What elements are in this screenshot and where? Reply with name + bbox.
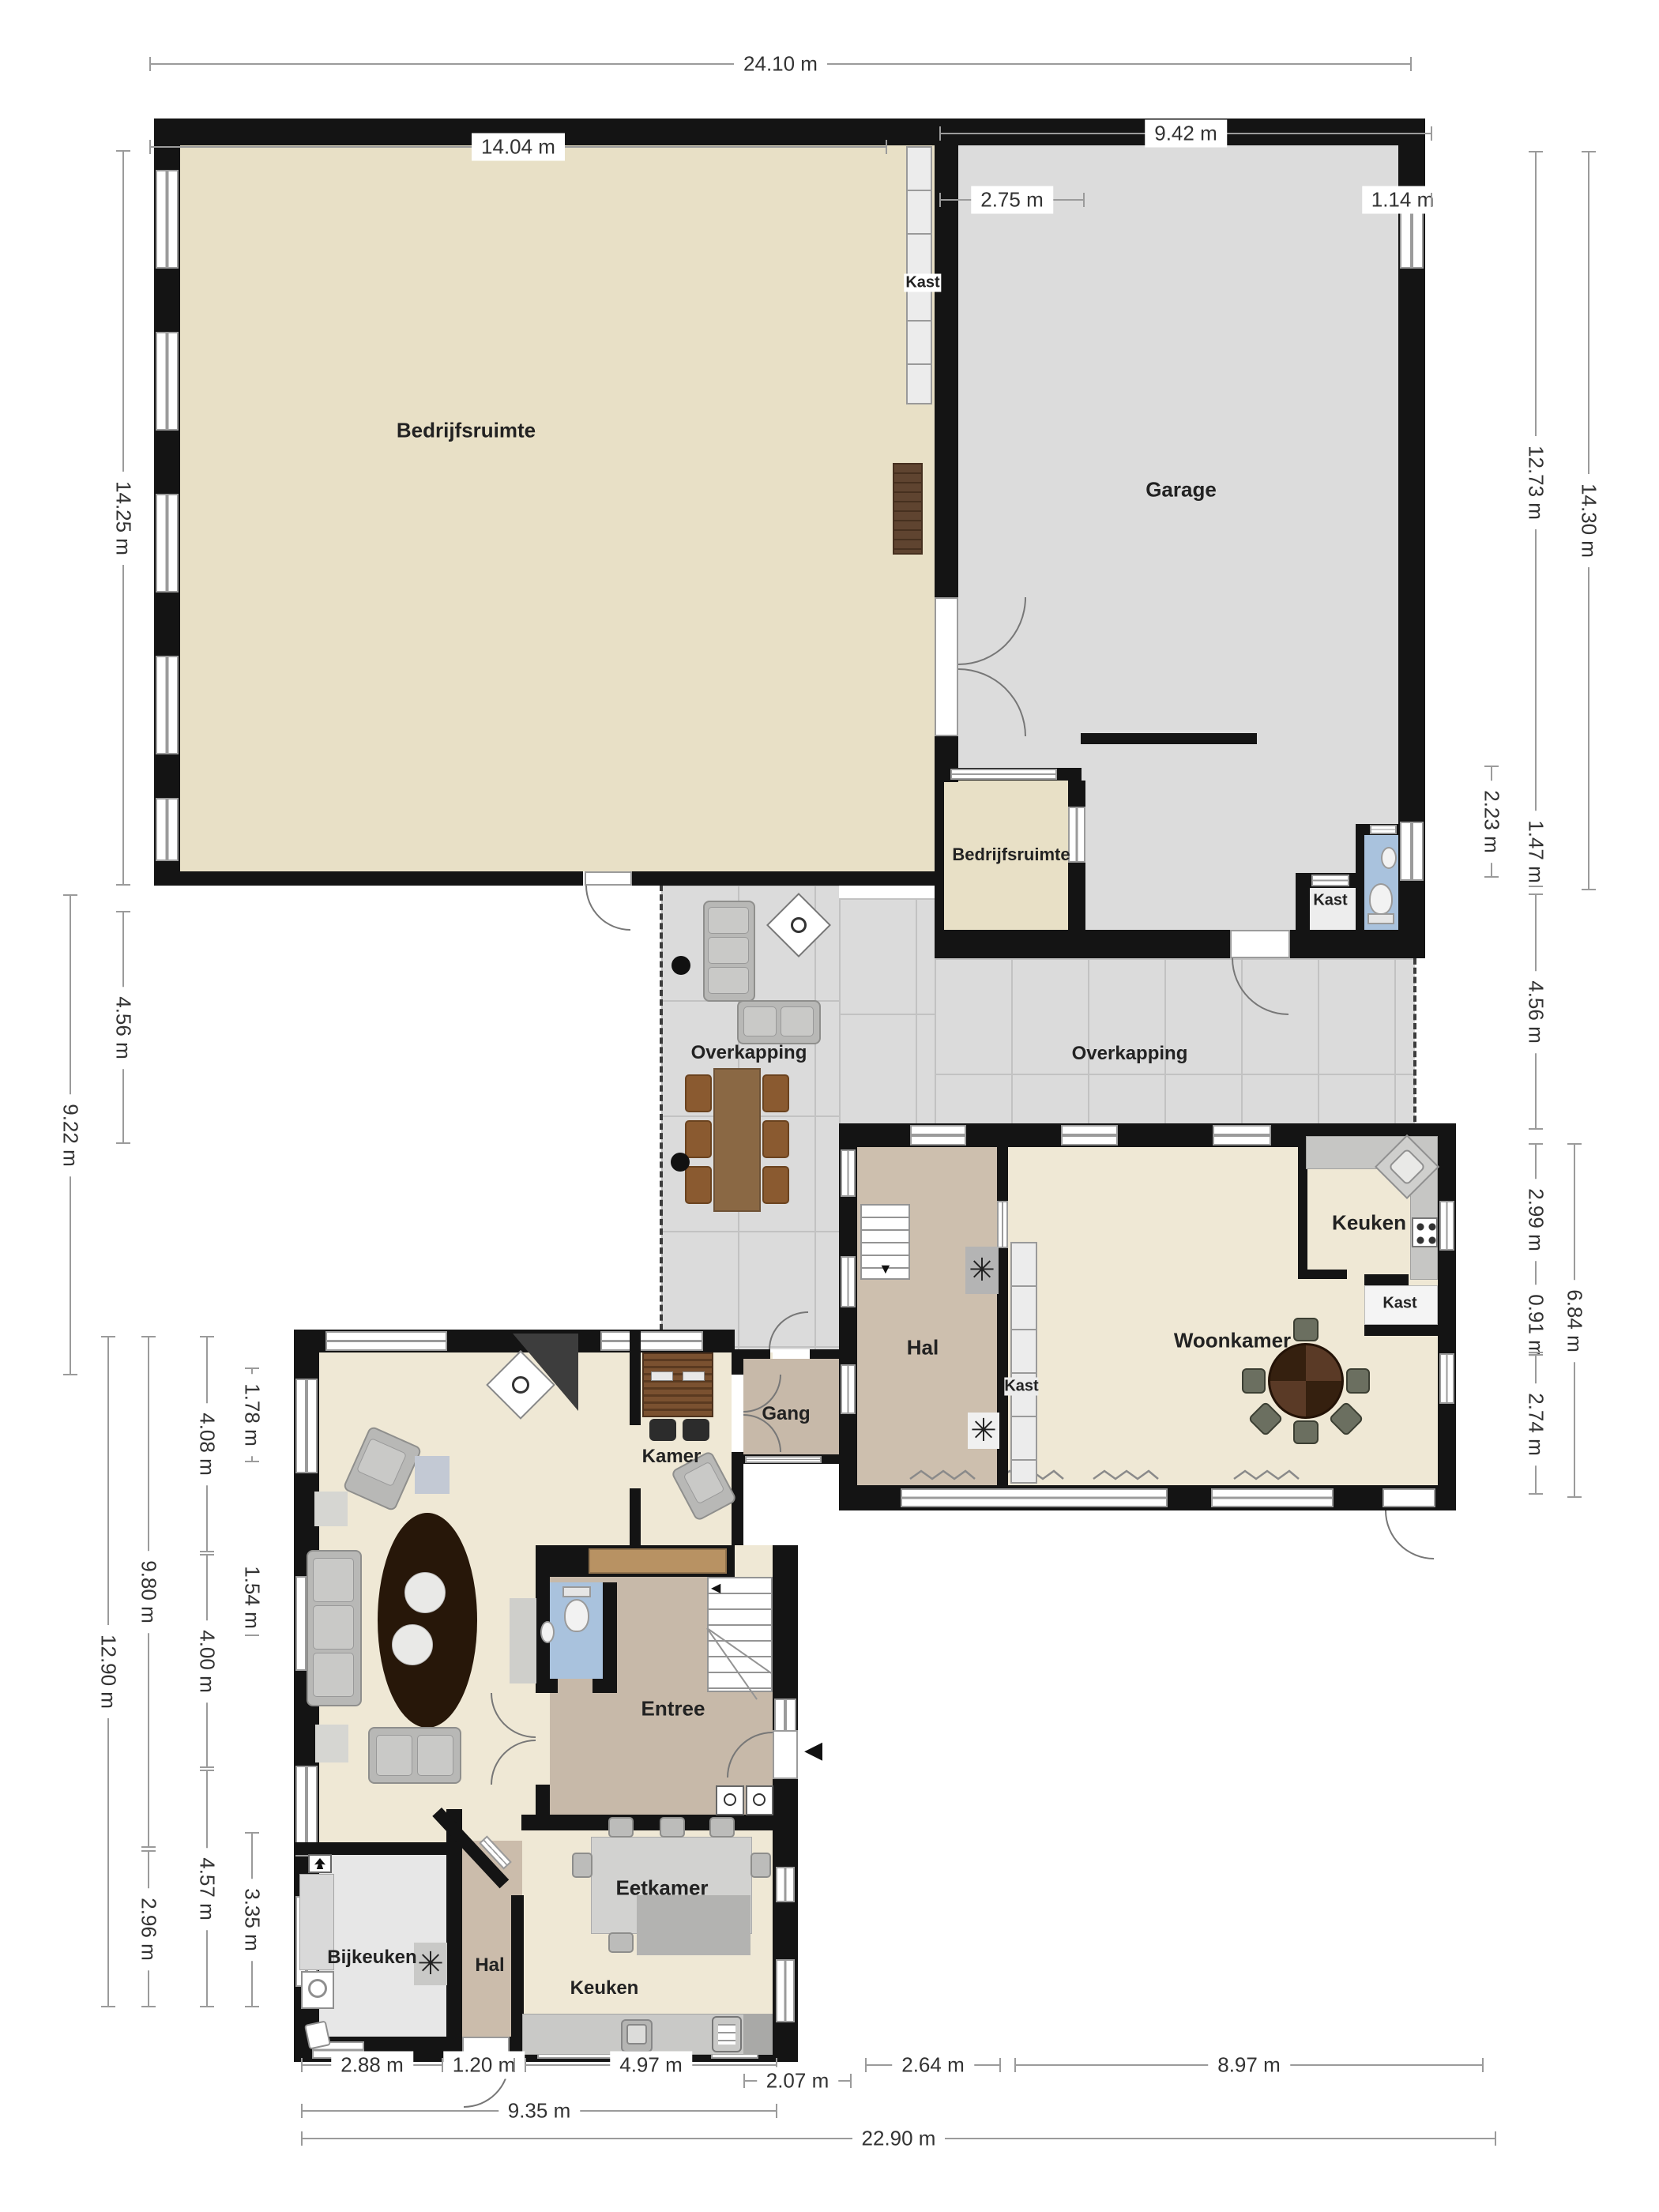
desk-slats (642, 1352, 713, 1417)
room-label-bijkeuken: Bijkeuken (327, 1947, 416, 1969)
room-label-hal-boven: Hal (907, 1336, 939, 1360)
sofa-cushion (708, 967, 749, 994)
round-table (1268, 1343, 1344, 1419)
dimension-9-22: 9.22 m (70, 895, 71, 1375)
window (1370, 825, 1397, 834)
dimension-label: 9.22 m (57, 1094, 85, 1176)
dimension-label: 12.73 m (1522, 436, 1550, 529)
dimension-4-00: 4.00 m (206, 1555, 208, 1767)
window (295, 1379, 318, 1473)
wall (1296, 873, 1310, 930)
post (671, 1153, 690, 1172)
dimension-4-56-left: 4.56 m (122, 912, 124, 1143)
fixture-asterisk-icon: ✳ (414, 1943, 447, 1985)
toilet-tank (1367, 913, 1394, 924)
dimension-label: 2.07 m (757, 2067, 839, 2095)
dimension-label: 2.74 m (1522, 1383, 1550, 1465)
post (671, 956, 690, 975)
wall (446, 1809, 462, 2062)
chair (660, 1817, 685, 1838)
wall (630, 1330, 641, 1425)
room-label-kast-garage: Kast (1313, 892, 1347, 910)
wall (810, 1349, 840, 1359)
dimension-2-23: 2.23 m (1491, 766, 1492, 877)
room-label-eetkamer: Eetkamer (615, 1876, 708, 1901)
fireplace-flue (512, 1376, 529, 1394)
chair (685, 1166, 712, 1204)
dimension-label: 12.90 m (95, 1625, 122, 1718)
dimension-2-96: 2.96 m (148, 1851, 149, 2007)
dimension-4-57: 4.57 m (206, 1770, 208, 2007)
sofa-cushion (743, 1006, 777, 1036)
dimension-label: 9.35 m (498, 2097, 581, 2125)
chair (685, 1120, 712, 1158)
dimension-2-64: 2.64 m (866, 2064, 1000, 2066)
chair (608, 1817, 634, 1838)
meter-symbol (753, 1793, 766, 1806)
wall (732, 1464, 743, 1545)
room-label-gang: Gang (762, 1403, 810, 1425)
dining-table (713, 1068, 761, 1212)
kast-shelves (1010, 1242, 1037, 1484)
wall (997, 1248, 1008, 1485)
dimension-label: 4.00 m (194, 1620, 221, 1702)
chair (1293, 1420, 1319, 1444)
wall (1364, 1325, 1438, 1336)
fixture-asterisk-icon: ✳ (965, 1247, 999, 1294)
chair (762, 1166, 789, 1204)
wall (1068, 863, 1085, 930)
chair (1293, 1318, 1319, 1341)
window (776, 1959, 795, 2022)
washbasin-icon (540, 1621, 555, 1643)
toilet-tank (562, 1586, 591, 1597)
window (156, 170, 179, 269)
overkapping-open-edge-right (1413, 958, 1416, 1131)
radiator-icon (908, 1468, 976, 1482)
wall (630, 1488, 641, 1545)
dimension-label: 24.10 m (734, 51, 827, 78)
kitchen-counter-dark (743, 2014, 773, 2055)
room-label-kamer: Kamer (642, 1446, 702, 1468)
window (950, 769, 1057, 780)
dimension-9-80: 9.80 m (148, 1337, 149, 1847)
window (1311, 875, 1349, 886)
dimension-1-20: 1.20 m (453, 2064, 514, 2066)
door-opening (935, 597, 958, 736)
dimension-2-74: 2.74 m (1535, 1355, 1537, 1494)
dimension-label: 2.23 m (1478, 781, 1506, 863)
dimension-1-78: 1.78 m (251, 1368, 253, 1461)
monitor (683, 1371, 705, 1381)
monitor (651, 1371, 673, 1381)
dimension-14-04: 14.04 m (150, 146, 886, 148)
window (156, 332, 179, 431)
dimension-22-90: 22.90 m (302, 2138, 1495, 2139)
window (1400, 209, 1424, 269)
dimension-label: 14.30 m (1575, 474, 1603, 567)
floor-bedrijfsruimte-main (179, 144, 935, 871)
dimension-4-56-right: 4.56 m (1535, 894, 1537, 1129)
chair (572, 1853, 592, 1878)
dimension-label: 2.96 m (135, 1888, 163, 1970)
rug (415, 1456, 450, 1494)
dimension-label: 4.08 m (194, 1403, 221, 1485)
fire-table-burner (791, 917, 807, 933)
dimension-3-35: 3.35 m (251, 1833, 253, 2007)
wall (1356, 824, 1364, 930)
room-label-kast-hal: Kast (1004, 1378, 1038, 1396)
oven-icon (712, 2016, 742, 2052)
wall (632, 871, 939, 886)
radiator-icon (1232, 1468, 1300, 1482)
dimension-label: 2.64 m (892, 2052, 974, 2079)
wall (935, 930, 1230, 958)
chair (1346, 1368, 1370, 1394)
dimension-label: 1.20 m (443, 2052, 525, 2079)
wardrobe (589, 1548, 727, 1574)
rug (314, 1492, 348, 1526)
dimension-2-88: 2.88 m (302, 2064, 442, 2066)
dimension-6-84: 6.84 m (1574, 1144, 1575, 1497)
dimension-0-91: 0.91 m (1535, 1298, 1537, 1352)
wall (154, 118, 1425, 145)
asterisk-glyph: ✳ (970, 1413, 997, 1449)
cabinet (893, 463, 923, 555)
sofa-cushion (313, 1653, 354, 1697)
dimension-label: 1.47 m (1522, 811, 1550, 893)
dimension-label: 2.75 m (971, 186, 1053, 214)
dimension-2-75: 2.75 m (940, 199, 1084, 201)
fixture-asterisk-icon: ✳ (968, 1413, 999, 1449)
coffee-table (404, 1572, 446, 1613)
dining-rug (637, 1895, 750, 1955)
wall (521, 1815, 794, 1830)
dimension-4-97: 4.97 m (525, 2064, 777, 2066)
floor-overkapping-right-a (839, 898, 935, 1131)
window (1213, 1125, 1271, 1145)
dimension-24-10: 24.10 m (150, 63, 1411, 65)
chair (709, 1817, 735, 1838)
dimension-label: 3.35 m (239, 1879, 266, 1961)
window (910, 1125, 966, 1145)
sofa-cushion (708, 907, 749, 934)
oval-rug (378, 1513, 477, 1728)
room-label-overkapping-right: Overkapping (1072, 1043, 1188, 1065)
chair (608, 1932, 634, 1953)
wall (154, 871, 583, 886)
wall (1364, 1274, 1409, 1285)
dimension-label: 14.04 m (472, 134, 565, 161)
window (1068, 807, 1085, 863)
chair (750, 1853, 771, 1878)
window (745, 1456, 822, 1463)
dimension-4-08: 4.08 m (206, 1337, 208, 1552)
dimension-label: 6.84 m (1561, 1280, 1589, 1362)
toilet-icon (564, 1599, 589, 1632)
dimension-label: 4.97 m (610, 2052, 692, 2079)
room-label-bedrijfsruimte-main: Bedrijfsruimte (397, 419, 536, 443)
dimension-1-47: 1.47 m (1535, 817, 1537, 886)
wall (1290, 930, 1425, 958)
meter-symbol (724, 1793, 736, 1806)
wall (592, 1679, 617, 1693)
wall (1438, 1123, 1456, 1510)
dimension-label: 1.14 m (1362, 186, 1444, 214)
dimension-label: 4.57 m (194, 1848, 221, 1930)
sofa-cushion (313, 1605, 354, 1650)
dimension-12-73: 12.73 m (1535, 152, 1537, 814)
dimension-label: 9.42 m (1145, 120, 1227, 148)
kitchen-sink-basin (626, 2024, 647, 2045)
stairs-arrow-icon: ▼ (878, 1261, 893, 1277)
side-table (510, 1598, 536, 1683)
window (156, 798, 179, 861)
dimension-14-30: 14.30 m (1588, 152, 1589, 890)
sofa-cushion (781, 1006, 814, 1036)
room-label-overkapping-left: Overkapping (691, 1042, 807, 1064)
sofa-cushion (708, 937, 749, 964)
door-opening (1230, 930, 1290, 958)
dimension-2-99: 2.99 m (1535, 1144, 1537, 1296)
window (1400, 822, 1424, 881)
room-label-bedrijfsruimte-small: Bedrijfsruimte (952, 845, 1070, 865)
wall (294, 1842, 462, 1855)
stove-icon (1412, 1217, 1438, 1247)
window (997, 1201, 1008, 1248)
chair (762, 1074, 789, 1112)
room-label-kast-keuken: Kast (1382, 1295, 1416, 1313)
room-label-keuken-beneden: Keuken (570, 1977, 639, 1999)
rug (315, 1725, 348, 1762)
wall (997, 1147, 1008, 1201)
room-label-hal-beneden: Hal (475, 1954, 504, 1977)
window (156, 656, 179, 754)
washbasin-icon (1381, 847, 1397, 869)
wall (935, 145, 958, 597)
window (156, 494, 179, 592)
door-opening (732, 1375, 743, 1452)
dimension-label: 1.54 m (239, 1556, 266, 1638)
asterisk-glyph: ✳ (969, 1252, 995, 1288)
sofa-cushion (376, 1735, 412, 1776)
door-opening (1382, 1488, 1435, 1507)
dimension-label: 4.56 m (1522, 971, 1550, 1053)
wall (1068, 781, 1085, 807)
toilet-icon (1369, 883, 1393, 915)
door-opening (585, 871, 632, 886)
window (600, 1331, 703, 1351)
wall (536, 1679, 558, 1693)
sofa-cushion (313, 1558, 354, 1602)
dimension-label: 2.88 m (331, 2052, 413, 2079)
window (841, 1256, 856, 1307)
sofa-cushion (417, 1735, 453, 1776)
dimension-label: 9.80 m (135, 1551, 163, 1633)
dimension-label: 8.97 m (1208, 2052, 1290, 2079)
window (841, 1149, 856, 1197)
dimension-9-35: 9.35 m (302, 2110, 777, 2112)
entrance-arrow-icon: ◀ (804, 1736, 822, 1764)
window (841, 1364, 856, 1414)
stairs-arrow-icon: ◀ (711, 1580, 720, 1596)
window (776, 1867, 795, 1902)
room-label-keuken-boven: Keuken (1332, 1211, 1406, 1236)
window (901, 1488, 1168, 1507)
room-label-entree: Entree (641, 1697, 705, 1721)
dimension-label: 1.78 m (239, 1374, 266, 1456)
wall (603, 1582, 617, 1693)
desk-chair (649, 1419, 676, 1441)
coffee-table (392, 1624, 433, 1665)
dimension-1-14: 1.14 m (1374, 199, 1431, 201)
chair (685, 1074, 712, 1112)
room-label-garage: Garage (1145, 478, 1217, 502)
dimension-label: 14.25 m (110, 472, 137, 565)
overkapping-open-edge-left (660, 885, 663, 1349)
washer-drum (308, 1979, 327, 1998)
dimension-label: 4.56 m (110, 987, 137, 1069)
dimension-1-54: 1.54 m (251, 1559, 253, 1635)
floor-plan-canvas: ◀ ▼ ✳ ✳ (0, 0, 1659, 2212)
dimension-2-07: 2.07 m (744, 2080, 851, 2082)
dimension-label: 22.90 m (852, 2125, 946, 2153)
chair (1242, 1368, 1266, 1394)
asterisk-glyph: ✳ (417, 1946, 444, 1982)
door-opening (773, 1730, 798, 1779)
window (325, 1331, 447, 1351)
radiator-icon (1092, 1468, 1160, 1482)
wall (1298, 1270, 1347, 1279)
chair (762, 1120, 789, 1158)
room-label-woonkamer: Woonkamer (1174, 1329, 1291, 1353)
dimension-14-25: 14.25 m (122, 151, 124, 885)
window (1439, 1201, 1454, 1251)
dimension-8-97: 8.97 m (1015, 2064, 1483, 2066)
wall (1081, 733, 1257, 744)
room-label-kast-strip: Kast (904, 274, 941, 292)
desk-chair (683, 1419, 709, 1441)
wall (935, 768, 944, 930)
window (1439, 1353, 1454, 1404)
dimension-9-42: 9.42 m (940, 133, 1431, 134)
dimension-label: 2.99 m (1522, 1179, 1550, 1261)
door-arc (1385, 1510, 1434, 1559)
dimension-12-90: 12.90 m (107, 1337, 109, 2007)
window (1211, 1488, 1334, 1507)
window (1061, 1125, 1118, 1145)
door-arc (585, 886, 630, 931)
